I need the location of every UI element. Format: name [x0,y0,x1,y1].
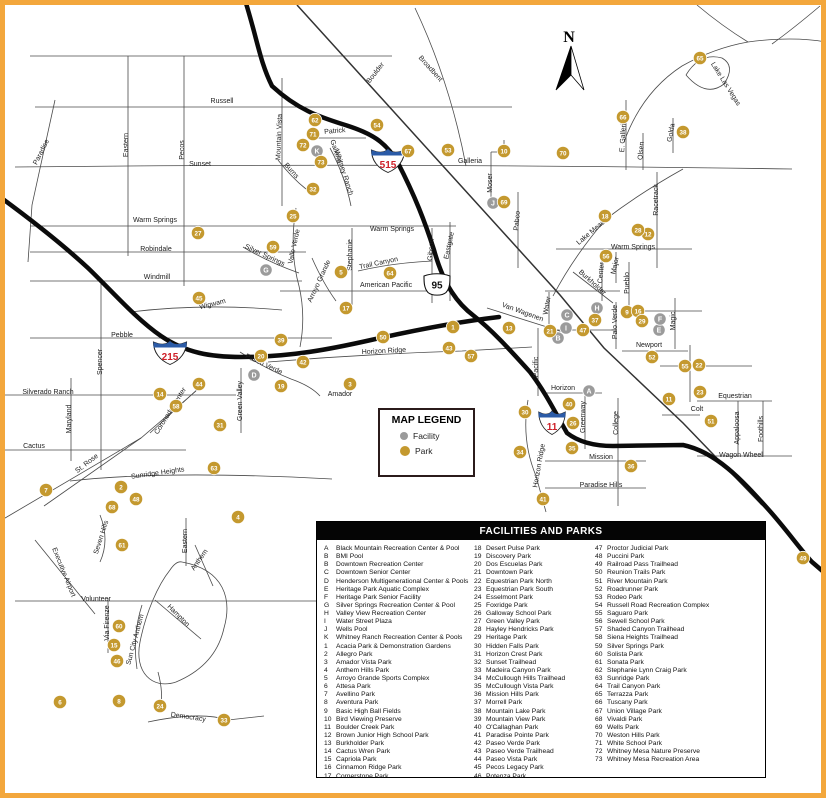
legend-row-key: 58 [595,634,607,642]
svg-text:66: 66 [619,114,627,121]
facility-marker-E: E [653,324,665,336]
park-marker-52: 52 [645,350,658,363]
svg-text:30: 30 [521,409,529,416]
legend-row-name: Avellino Park [336,691,474,699]
park-marker-58: 58 [169,399,182,412]
legend-row-key: 45 [474,764,486,772]
legend-row-name: White School Park [607,740,763,748]
park-marker-36: 36 [624,459,637,472]
svg-text:73: 73 [317,159,325,166]
map-legend-park-label: Park [415,446,432,456]
legend-row-name: Whitney Mesa Recreation Area [607,756,763,764]
legend-row-name: Brown Junior High School Park [336,732,474,740]
legend-row: 56Sewell School Park [595,618,763,626]
park-marker-33: 33 [217,713,230,726]
legend-row: 60Solista Park [595,651,763,659]
legend-row: 52Roadrunner Park [595,586,763,594]
street-label: Wagon Wheel [719,452,763,459]
svg-text:21: 21 [546,328,554,335]
legend-row: IWater Street Plaza [324,618,474,626]
henderson-parks-map: { "frame": {"border_color": "#F3A73C"}, … [0,0,826,798]
legend-row: 65Terrazza Park [595,691,763,699]
svg-text:64: 64 [386,270,394,277]
legend-row-key: 65 [595,691,607,699]
legend-row-name: Green Valley Park [486,618,595,626]
street-label: Sunset [189,161,211,168]
legend-row: 53Rodeo Park [595,594,763,602]
legend-row: 17Cornerstone Park [324,773,474,781]
svg-text:49: 49 [799,555,807,562]
legend-row-name: Saguaro Park [607,610,763,618]
svg-text:D: D [251,373,256,380]
svg-text:27: 27 [194,230,202,237]
map-legend-title: MAP LEGEND [380,414,473,426]
svg-text:39: 39 [277,337,285,344]
legend-row: 29Heritage Park [474,634,595,642]
legend-row-key: 41 [474,732,486,740]
park-marker-46: 46 [110,654,123,667]
svg-text:1: 1 [451,324,455,331]
legend-row-key: 38 [474,708,486,716]
svg-text:6: 6 [58,699,62,706]
park-marker-21: 21 [543,324,556,337]
legend-row-key: 11 [324,724,336,732]
park-marker-47: 47 [576,323,589,336]
svg-text:29: 29 [638,318,646,325]
park-marker-22: 22 [692,358,705,371]
legend-row-key: 48 [595,553,607,561]
street-label: Seven Hills [93,519,111,555]
svg-text:45: 45 [195,295,203,302]
svg-text:95: 95 [431,281,443,292]
legend-row: 11Boulder Creek Park [324,724,474,732]
street-label: Equestrian [718,393,752,400]
svg-text:59: 59 [269,244,277,251]
legend-row: 57Shaded Canyon Trailhead [595,626,763,634]
svg-text:69: 69 [500,199,508,206]
legend-row: 45Pecos Legacy Park [474,764,595,772]
street-label: College [613,411,620,435]
legend-row: 23Equestrian Park South [474,586,595,594]
svg-text:53: 53 [444,147,452,154]
street-label: Lake Las Vegas [709,61,742,107]
legend-row-key: J [324,626,336,634]
svg-text:23: 23 [696,389,704,396]
legend-row-key: 10 [324,716,336,724]
park-marker-64: 64 [383,266,396,279]
park-marker-39: 39 [274,333,287,346]
park-marker-43: 43 [442,341,455,354]
legend-row-key: G [324,602,336,610]
street-label: Valle Verde [287,229,301,265]
street-label: Galleria [458,158,482,165]
legend-row-name: Hidden Falls Park [486,643,595,651]
legend-row-name: Burkholder Park [336,740,474,748]
park-marker-1: 1 [446,320,459,333]
legend-row-key: 19 [474,553,486,561]
svg-text:24: 24 [156,703,164,710]
facility-marker-C: C [561,309,573,321]
legend-row: 62Stephanie Lynn Craig Park [595,667,763,675]
svg-text:28: 28 [634,227,642,234]
interstate-shield-215: 215 [153,341,186,365]
park-marker-60: 60 [112,619,125,632]
street-label: Democracy [170,712,207,724]
north-compass-icon: N [556,29,584,90]
legend-row: 72Whitney Mesa Nature Preserve [595,748,763,756]
street-label: Colt [691,406,704,413]
legend-row: 61Sonata Park [595,659,763,667]
street-label: Pecos [179,140,186,160]
street-label: Maryland [66,405,73,434]
legend-row-key: 12 [324,732,336,740]
legend-row: 44Paseo Vista Park [474,756,595,764]
street-label: Executive Airport [50,547,76,598]
street-label: Pabco [513,211,522,231]
legend-row: 18Desert Pulse Park [474,545,595,553]
park-marker-49: 49 [796,551,809,564]
svg-text:54: 54 [373,122,381,129]
legend-row-name: Boulder Creek Park [336,724,474,732]
legend-row-name: O'Callaghan Park [486,724,595,732]
legend-row-key: 9 [324,708,336,716]
svg-text:10: 10 [500,148,508,155]
street-label: Warm Springs [370,226,415,233]
street-label: Foothills [758,415,765,442]
legend-row-name: Heritage Park Senior Facility [336,594,474,602]
park-marker-61: 61 [115,538,128,551]
legend-row: 69Wells Park [595,724,763,732]
park-marker-4: 4 [231,510,244,523]
svg-text:8: 8 [117,698,121,705]
legend-row-key: 71 [595,740,607,748]
park-marker-66: 66 [616,110,629,123]
svg-text:5: 5 [339,269,343,276]
legend-row-key: 53 [595,594,607,602]
road [624,39,826,142]
svg-text:14: 14 [156,391,164,398]
park-marker-50: 50 [376,330,389,343]
facility-marker-G: G [260,264,272,276]
legend-row: 1Acacia Park & Demonstration Gardens [324,643,474,651]
legend-row-name: Vivaldi Park [607,716,763,724]
table-column-2: 18Desert Pulse Park19Discovery Park20Dos… [474,545,595,781]
legend-row: 41Paradise Pointe Park [474,732,595,740]
road [553,169,683,296]
street-label: Lake Mead [576,219,607,247]
legend-row: 28Hayley Hendricks Park [474,626,595,634]
svg-text:67: 67 [404,148,412,155]
legend-row-name: Cinnamon Ridge Park [336,764,474,772]
park-marker-15: 15 [107,638,120,651]
street-label: Green Valley [237,381,244,421]
svg-text:46: 46 [113,658,121,665]
svg-text:44: 44 [195,381,203,388]
road [15,165,792,169]
svg-text:3: 3 [348,381,352,388]
svg-text:18: 18 [601,213,609,220]
svg-text:11: 11 [666,396,673,403]
legend-row-key: 2 [324,651,336,659]
legend-row-key: 25 [474,602,486,610]
map-legend-item-park: Park [400,446,473,456]
street-label: Eastern [123,133,130,157]
legend-row-key: 43 [474,748,486,756]
park-marker-67: 67 [401,144,414,157]
legend-row-key: 30 [474,643,486,651]
legend-row: 14Cactus Wren Park [324,748,474,756]
park-marker-54: 54 [370,118,383,131]
legend-row-name: Mission Hills Park [486,691,595,699]
svg-text:34: 34 [516,449,524,456]
svg-text:52: 52 [648,354,656,361]
park-marker-59: 59 [266,240,279,253]
street-label: Palo Verde [612,305,619,339]
svg-text:2: 2 [119,484,123,491]
street-label: E. Galleria [619,119,628,152]
legend-row-key: 52 [595,586,607,594]
legend-row-name: McCullough Hills Trailhead [486,675,595,683]
svg-text:4: 4 [236,514,240,521]
park-marker-73: 73 [314,155,327,168]
compass-arrow-light [571,46,584,90]
legend-row-name: Solista Park [607,651,763,659]
us-route-shield-95: 95 [424,274,450,295]
legend-row-name: Shaded Canyon Trailhead [607,626,763,634]
svg-text:56: 56 [602,253,610,260]
svg-text:62: 62 [311,117,319,124]
legend-row: 5Arroyo Grande Sports Complex [324,675,474,683]
street-label: St. Rose [74,453,100,475]
legend-row-name: Trail Canyon Park [607,683,763,691]
legend-row: 64Trail Canyon Park [595,683,763,691]
svg-text:50: 50 [379,334,387,341]
legend-row: 63Sunridge Park [595,675,763,683]
legend-row-name: Paradise Pointe Park [486,732,595,740]
legend-row-key: 62 [595,667,607,675]
street-label: Horizon Ridge [362,347,407,356]
street-label: Stephanie [347,239,354,271]
legend-row-key: 72 [595,748,607,756]
street-label: Center [597,261,606,283]
street-label: Boulder [366,61,387,85]
legend-row-key: 70 [595,732,607,740]
legend-row-key: 20 [474,561,486,569]
svg-text:13: 13 [505,325,513,332]
park-marker-37: 37 [588,313,601,326]
street-label: Newport [636,342,662,349]
legend-row-key: 23 [474,586,486,594]
legend-row-name: Heritage Park [486,634,595,642]
legend-row-name: Wells Park [607,724,763,732]
legend-row-name: Railroad Pass Trailhead [607,561,763,569]
park-marker-51: 51 [704,414,717,427]
legend-row: 33Madeira Canyon Park [474,667,595,675]
park-marker-7: 7 [39,483,52,496]
svg-text:33: 33 [220,717,228,724]
legend-row-name: Silver Springs Recreation Center & Pool [336,602,474,610]
legend-row-name: Reunion Trails Park [607,569,763,577]
legend-row: HValley View Recreation Center [324,610,474,618]
svg-text:19: 19 [277,383,285,390]
legend-row-name: Dos Escuelas Park [486,561,595,569]
svg-text:7: 7 [44,487,48,494]
legend-row: 26Galloway School Park [474,610,595,618]
street-label: Burns [282,162,300,181]
road [697,5,748,42]
park-marker-70: 70 [556,146,569,159]
svg-text:65: 65 [696,55,704,62]
legend-row-key: 44 [474,756,486,764]
legend-row-name: Downtown Senior Center [336,569,474,577]
legend-row-name: River Mountain Park [607,578,763,586]
street-label: Pacific [533,356,540,377]
legend-row: 43Paseo Verde Trailhead [474,748,595,756]
legend-row-name: Black Mountain Recreation Center & Pool [336,545,474,553]
svg-text:32: 32 [309,186,317,193]
legend-row-name: Siena Heights Trailhead [607,634,763,642]
svg-text:G: G [263,268,269,275]
legend-row: 21Downtown Park [474,569,595,577]
svg-text:36: 36 [627,463,635,470]
svg-text:26: 26 [569,420,577,427]
legend-row-name: Mountain View Park [486,716,595,724]
park-marker-34: 34 [513,445,526,458]
legend-row-key: 67 [595,708,607,716]
legend-row: 39Mountain View Park [474,716,595,724]
legend-row-name: BMI Pool [336,553,474,561]
legend-row-name: Aventura Park [336,699,474,707]
legend-row: 36Mission Hills Park [474,691,595,699]
legend-row: KWhitney Ranch Recreation Center & Pools [324,634,474,642]
legend-row: 67Union Village Park [595,708,763,716]
street-label: Paradise Hills [580,482,623,489]
svg-text:25: 25 [289,213,297,220]
legend-row: FHeritage Park Senior Facility [324,594,474,602]
legend-row-name: Esselmont Park [486,594,595,602]
legend-row-name: McCullough Vista Park [486,683,595,691]
svg-text:17: 17 [342,305,350,312]
legend-row: 42Paseo Verde Park [474,740,595,748]
legend-row: 20Dos Escuelas Park [474,561,595,569]
legend-row-key: 26 [474,610,486,618]
park-marker-28: 28 [631,223,644,236]
svg-text:41: 41 [539,496,547,503]
svg-text:57: 57 [467,353,475,360]
legend-row-key: 21 [474,569,486,577]
svg-text:68: 68 [108,504,116,511]
map-legend-item-facility: Facility [400,431,473,441]
legend-row-key: B [324,561,336,569]
legend-row: 31Horizon Crest Park [474,651,595,659]
park-marker-48: 48 [129,492,142,505]
legend-row-name: Wells Pool [336,626,474,634]
road [44,438,141,506]
street-label: Sunridge Heights [131,466,186,480]
legend-row: 35McCullough Vista Park [474,683,595,691]
table-column-1: ABlack Mountain Recreation Center & Pool… [324,545,474,781]
street-label: Volunteer [81,596,111,603]
park-marker-20: 20 [254,349,267,362]
legend-row: 3Amador Vista Park [324,659,474,667]
park-marker-5: 5 [334,265,347,278]
legend-row-key: 46 [474,773,486,781]
facility-dot-icon [400,432,408,440]
park-marker-56: 56 [599,249,612,262]
park-marker-69: 69 [497,195,510,208]
legend-row-key: 69 [595,724,607,732]
legend-row-name: Discovery Park [486,553,595,561]
svg-text:63: 63 [210,465,218,472]
legend-row-key: F [324,594,336,602]
legend-row-name: Sunridge Park [607,675,763,683]
legend-row-name: Silver Springs Park [607,643,763,651]
legend-row-name: Rodeo Park [607,594,763,602]
street-label: Anthem [190,548,210,572]
legend-row-key: B [324,553,336,561]
legend-row-key: 68 [595,716,607,724]
svg-text:H: H [594,306,599,313]
legend-row-name: Bird Viewing Preserve [336,716,474,724]
street-label: Cactus [23,443,45,450]
legend-row-key: 39 [474,716,486,724]
park-marker-25: 25 [286,209,299,222]
legend-row-name: Foxridge Park [486,602,595,610]
legend-row: 15Capriola Park [324,756,474,764]
legend-row-name: Whitney Ranch Recreation Center & Pools [336,634,474,642]
park-marker-35: 35 [565,441,578,454]
legend-row-name: Amador Vista Park [336,659,474,667]
park-marker-42: 42 [296,355,309,368]
legend-row-name: Basic High Ball Fields [336,708,474,716]
legend-row: 4Anthem Hills Park [324,667,474,675]
street-label: Horizon [551,385,575,392]
street-label: Horizon Ridge [532,443,547,488]
park-marker-3: 3 [343,377,356,390]
legend-row-key: 17 [324,773,336,781]
svg-text:A: A [586,389,591,396]
legend-row-key: 56 [595,618,607,626]
park-marker-11: 11 [662,392,675,405]
park-marker-17: 17 [339,301,352,314]
legend-row-name: Stephanie Lynn Craig Park [607,667,763,675]
legend-row-name: Valley View Recreation Center [336,610,474,618]
svg-text:72: 72 [299,142,307,149]
street-label: Windmill [144,274,171,281]
legend-row-key: 63 [595,675,607,683]
legend-row-name: Cactus Wren Park [336,748,474,756]
legend-row-name: Pecos Legacy Park [486,764,595,772]
legend-row-name: Desert Pulse Park [486,545,595,553]
park-marker-44: 44 [192,377,205,390]
legend-row-key: 49 [595,561,607,569]
legend-row: BDowntown Recreation Center [324,561,474,569]
legend-row-name: Potenza Park [486,773,595,781]
table-column-3: 47Proctor Judicial Park48Puccini Park49R… [595,545,763,781]
street-label: Eastern [182,529,189,553]
road [772,6,820,44]
legend-row-name: Allegro Park [336,651,474,659]
street-label: Water [542,295,552,315]
street-label: Moser [487,173,494,193]
legend-row-key: H [324,610,336,618]
legend-row: 8Aventura Park [324,699,474,707]
park-marker-41: 41 [536,492,549,505]
legend-row: 9Basic High Ball Fields [324,708,474,716]
park-marker-63: 63 [207,461,220,474]
legend-row: 10Bird Viewing Preserve [324,716,474,724]
street-label: Amador [328,391,353,398]
